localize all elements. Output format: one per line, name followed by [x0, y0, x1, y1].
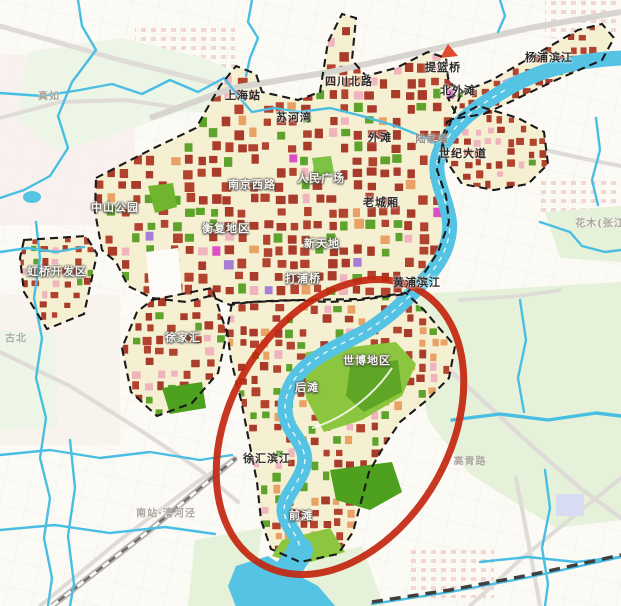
map-canvas[interactable] [0, 0, 621, 606]
planning-map[interactable]: 真如 上海站 苏河湾 四川北路 提篮桥 北外滩 杨浦滨江 外滩 陆家嘴 世纪大道… [0, 0, 621, 606]
pond [23, 191, 41, 203]
